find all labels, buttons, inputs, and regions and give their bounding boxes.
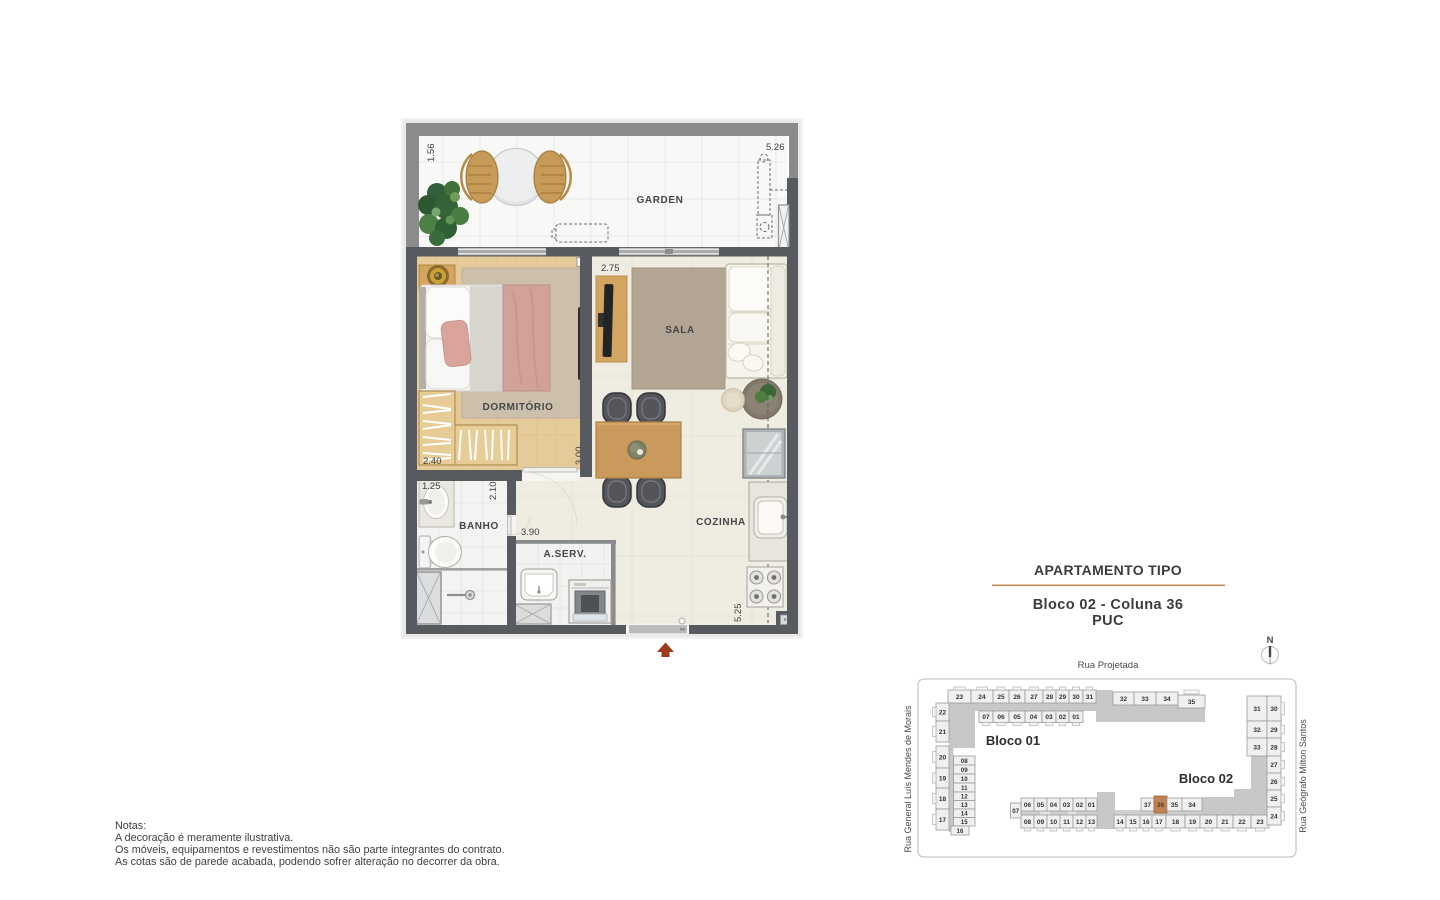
svg-text:Os móveis, equipamentos e reve: Os móveis, equipamentos e revestimentos … xyxy=(115,844,505,856)
svg-text:26: 26 xyxy=(1270,779,1278,786)
svg-text:11: 11 xyxy=(961,785,968,792)
svg-text:35: 35 xyxy=(1171,802,1179,809)
svg-text:36: 36 xyxy=(1157,802,1165,809)
svg-text:16: 16 xyxy=(1142,819,1150,826)
svg-text:1.25: 1.25 xyxy=(422,481,441,492)
svg-text:22: 22 xyxy=(1238,819,1246,826)
svg-text:14: 14 xyxy=(961,811,968,818)
svg-text:Bloco 02 - Coluna 36: Bloco 02 - Coluna 36 xyxy=(1033,597,1184,613)
svg-text:15: 15 xyxy=(961,819,968,826)
svg-text:07: 07 xyxy=(1012,808,1019,815)
svg-text:2.10: 2.10 xyxy=(488,482,499,501)
svg-text:Bloco 02: Bloco 02 xyxy=(1179,771,1233,786)
svg-text:1.56: 1.56 xyxy=(426,144,437,163)
svg-text:APARTAMENTO TIPO: APARTAMENTO TIPO xyxy=(1034,562,1182,578)
svg-text:5.26: 5.26 xyxy=(766,142,785,153)
svg-text:18: 18 xyxy=(939,796,947,803)
svg-text:30: 30 xyxy=(1270,706,1278,713)
svg-text:01: 01 xyxy=(1072,714,1080,721)
svg-text:09: 09 xyxy=(1037,819,1045,826)
svg-text:21: 21 xyxy=(939,729,947,736)
svg-text:19: 19 xyxy=(939,775,947,782)
svg-text:31: 31 xyxy=(1253,706,1261,713)
svg-text:26: 26 xyxy=(1013,694,1021,701)
svg-text:07: 07 xyxy=(982,714,990,721)
svg-text:28: 28 xyxy=(1046,694,1054,701)
svg-text:03: 03 xyxy=(1045,714,1053,721)
svg-text:03: 03 xyxy=(1063,802,1071,809)
svg-text:06: 06 xyxy=(997,714,1005,721)
svg-text:As cotas são de parede acabada: As cotas são de parede acabada, podendo … xyxy=(115,856,500,868)
svg-text:A decoração é meramente ilustr: A decoração é meramente ilustrativa. xyxy=(115,832,293,844)
svg-text:12: 12 xyxy=(961,794,968,801)
svg-text:04: 04 xyxy=(1030,714,1038,721)
svg-text:2.75: 2.75 xyxy=(601,263,620,274)
svg-text:BANHO: BANHO xyxy=(459,521,499,532)
svg-text:02: 02 xyxy=(1076,802,1084,809)
svg-text:Rua Projetada: Rua Projetada xyxy=(1078,660,1139,671)
svg-text:24: 24 xyxy=(978,694,986,701)
svg-text:2.40: 2.40 xyxy=(423,456,442,467)
svg-text:29: 29 xyxy=(1059,694,1067,701)
svg-text:05: 05 xyxy=(1037,802,1045,809)
svg-text:20: 20 xyxy=(1205,819,1213,826)
svg-text:22: 22 xyxy=(939,709,947,716)
svg-text:Notas:: Notas: xyxy=(115,820,146,832)
svg-text:14: 14 xyxy=(1116,819,1124,826)
svg-text:05: 05 xyxy=(1013,714,1021,721)
svg-text:DORMITÓRIO: DORMITÓRIO xyxy=(483,400,554,413)
svg-text:34: 34 xyxy=(1163,696,1171,703)
svg-text:08: 08 xyxy=(961,758,968,765)
svg-text:PUC: PUC xyxy=(1092,613,1124,629)
svg-text:29: 29 xyxy=(1270,727,1278,734)
svg-text:15: 15 xyxy=(1129,819,1137,826)
svg-text:23: 23 xyxy=(1256,819,1264,826)
svg-text:25: 25 xyxy=(997,694,1005,701)
svg-text:35: 35 xyxy=(1188,699,1196,706)
svg-text:19: 19 xyxy=(1189,819,1197,826)
svg-text:27: 27 xyxy=(1270,762,1278,769)
svg-text:32: 32 xyxy=(1253,727,1261,734)
svg-text:N: N xyxy=(1267,635,1274,646)
svg-text:25: 25 xyxy=(1270,796,1278,803)
svg-text:Bloco 01: Bloco 01 xyxy=(986,733,1040,748)
svg-text:12: 12 xyxy=(1076,819,1084,826)
svg-text:11: 11 xyxy=(1063,819,1070,826)
svg-text:A.SERV.: A.SERV. xyxy=(543,549,586,560)
svg-text:23: 23 xyxy=(956,694,964,701)
svg-text:01: 01 xyxy=(1088,802,1096,809)
svg-text:10: 10 xyxy=(1050,819,1058,826)
svg-text:37: 37 xyxy=(1144,802,1152,809)
svg-text:28: 28 xyxy=(1270,744,1278,751)
svg-text:16: 16 xyxy=(957,828,964,835)
svg-text:20: 20 xyxy=(939,754,947,761)
svg-text:02: 02 xyxy=(1059,714,1067,721)
svg-text:24: 24 xyxy=(1270,813,1278,820)
svg-text:13: 13 xyxy=(961,802,968,809)
svg-text:09: 09 xyxy=(961,767,968,774)
svg-text:04: 04 xyxy=(1050,802,1058,809)
svg-text:31: 31 xyxy=(1086,694,1094,701)
svg-text:Rua Geógrafo Milton Santos: Rua Geógrafo Milton Santos xyxy=(1298,719,1308,833)
svg-text:32: 32 xyxy=(1120,696,1128,703)
svg-text:34: 34 xyxy=(1188,802,1196,809)
svg-text:27: 27 xyxy=(1030,694,1038,701)
svg-text:17: 17 xyxy=(1155,819,1163,826)
svg-text:COZINHA: COZINHA xyxy=(696,517,746,528)
svg-text:08: 08 xyxy=(1024,819,1032,826)
svg-text:13: 13 xyxy=(1088,819,1096,826)
svg-text:33: 33 xyxy=(1141,696,1149,703)
svg-text:17: 17 xyxy=(939,817,947,824)
svg-text:GARDEN: GARDEN xyxy=(637,195,684,206)
svg-text:21: 21 xyxy=(1221,819,1229,826)
svg-text:33: 33 xyxy=(1253,744,1261,751)
svg-text:10: 10 xyxy=(961,776,968,783)
svg-text:30: 30 xyxy=(1072,694,1080,701)
svg-text:18: 18 xyxy=(1172,819,1180,826)
svg-text:3.90: 3.90 xyxy=(521,527,540,538)
svg-text:06: 06 xyxy=(1024,802,1032,809)
svg-text:SALA: SALA xyxy=(665,325,695,336)
svg-text:5.25: 5.25 xyxy=(733,604,744,623)
svg-text:Rua General Luís Mendes de Mor: Rua General Luís Mendes de Morais xyxy=(903,705,913,853)
